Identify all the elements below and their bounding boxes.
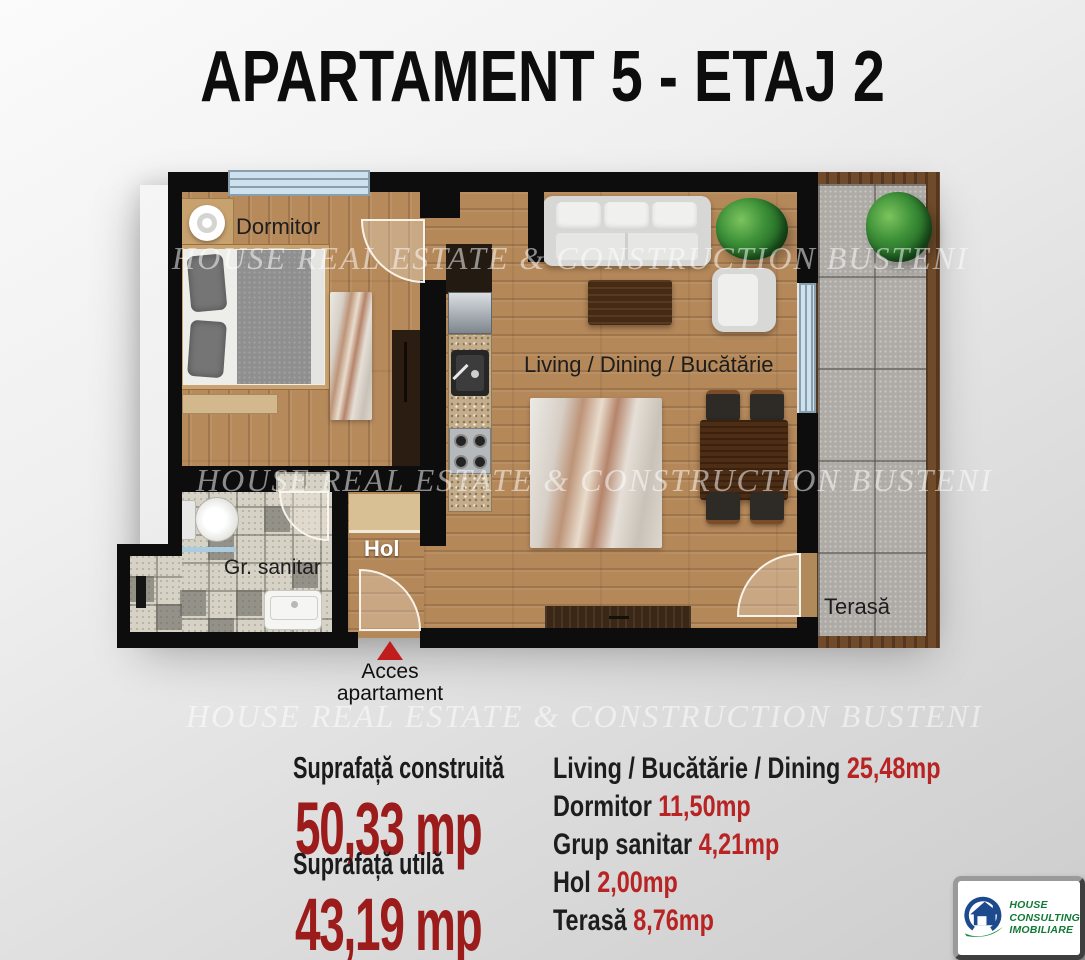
room-area-row: Dormitor 11,50mp xyxy=(553,788,941,826)
room-value: 25,48mp xyxy=(847,752,941,785)
room-area-row: Living / Bucătărie / Dining 25,48mp xyxy=(553,750,941,788)
ceiling-lamp-icon xyxy=(189,205,225,241)
wardrobe xyxy=(392,330,420,468)
wall-segment xyxy=(168,192,182,466)
bathroom-dark-tile xyxy=(236,590,262,616)
armchair xyxy=(712,268,776,332)
agency-logo: HOUSE CONSULTING IMOBILIARE xyxy=(953,876,1085,960)
watermark-text: HOUSE REAL ESTATE & CONSTRUCTION BUSTENI xyxy=(186,698,983,735)
hallway-label: Hol xyxy=(364,536,399,562)
dining-chair xyxy=(706,390,740,422)
bathroom-sink-basin xyxy=(270,596,318,620)
lamp-center xyxy=(202,218,212,228)
logo-line1: HOUSE xyxy=(1009,899,1080,912)
hallway-mat xyxy=(349,494,420,533)
usable-area-label: Suprafață utilă xyxy=(293,846,444,882)
wall-segment xyxy=(420,628,797,648)
room-name: Dormitor xyxy=(553,790,652,823)
wall-segment xyxy=(168,466,182,556)
wall-segment xyxy=(117,632,358,648)
sideboard xyxy=(545,606,691,630)
usable-area-value: 43,19 mp xyxy=(295,888,481,960)
room-name: Living / Bucătărie / Dining xyxy=(553,752,840,785)
bedroom-label: Dormitor xyxy=(236,214,320,240)
sofa-cushion xyxy=(652,202,697,230)
terrace-door-threshold xyxy=(797,553,817,617)
bathroom-dark-tile xyxy=(180,590,206,616)
access-label-line2: apartament xyxy=(322,682,458,706)
room-area-row: Grup sanitar 4,21mp xyxy=(553,826,941,864)
toilet-bowl xyxy=(195,497,239,542)
sink-drain xyxy=(471,370,479,378)
bathroom-label: Gr. sanitar xyxy=(224,556,321,580)
kitchen-sink-icon xyxy=(451,350,489,396)
pillow xyxy=(187,320,227,378)
room-value: 8,76mp xyxy=(633,904,714,937)
logo-line2: CONSULTING xyxy=(1009,912,1080,925)
logo-text: HOUSE CONSULTING IMOBILIARE xyxy=(1009,899,1080,937)
fridge-icon xyxy=(448,292,492,334)
stove-burner xyxy=(473,434,487,448)
bedroom-window xyxy=(228,170,370,196)
bathroom-sink-icon xyxy=(264,590,322,630)
room-value: 4,21mp xyxy=(699,828,780,861)
room-name: Terasă xyxy=(553,904,627,937)
wall-segment xyxy=(420,280,446,546)
sofa-cushion xyxy=(556,202,601,230)
wall-segment xyxy=(332,492,348,640)
terrace-label: Terasă xyxy=(824,594,890,620)
room-area-row: Hol 2,00mp xyxy=(553,864,941,902)
room-value: 2,00mp xyxy=(597,866,678,899)
living-label: Living / Dining / Bucătărie xyxy=(524,352,773,378)
wall-segment xyxy=(420,192,460,218)
built-area-label: Suprafață construită xyxy=(293,750,504,786)
room-name: Grup sanitar xyxy=(553,828,692,861)
terrace-window xyxy=(799,283,816,413)
stove-burner xyxy=(454,434,468,448)
watermark-text: HOUSE REAL ESTATE & CONSTRUCTION BUSTENI xyxy=(172,240,969,277)
logo-line3: IMOBILIARE xyxy=(1009,924,1080,937)
page-title: APARTAMENT 5 - ETAJ 2 xyxy=(109,36,977,118)
room-value: 11,50mp xyxy=(658,790,750,823)
coffee-table xyxy=(588,280,672,325)
dining-chair xyxy=(750,390,784,422)
access-label-line1: Acces xyxy=(322,660,458,684)
bathroom-dark-tile xyxy=(156,604,182,630)
bed-bench xyxy=(182,394,278,414)
apartment-plan-poster: APARTAMENT 5 - ETAJ 2 xyxy=(0,0,1085,960)
bedroom-rug xyxy=(330,292,372,420)
wall-segment xyxy=(797,617,818,648)
watermark-text: HOUSE REAL ESTATE & CONSTRUCTION BUSTENI xyxy=(196,462,993,499)
armchair-cushion xyxy=(718,274,758,326)
room-name: Hol xyxy=(553,866,591,899)
bathroom-shelf xyxy=(178,547,236,552)
bathroom-dark-tile xyxy=(264,506,290,532)
sofa-cushion xyxy=(604,202,649,230)
room-area-row: Terasă 8,76mp xyxy=(553,902,941,940)
bathroom-radiator xyxy=(136,576,146,608)
bathroom-sink-tap xyxy=(291,601,298,608)
toilet-icon xyxy=(180,500,196,540)
logo-house-icon xyxy=(963,890,1006,946)
entry-arrow-icon xyxy=(377,641,403,660)
